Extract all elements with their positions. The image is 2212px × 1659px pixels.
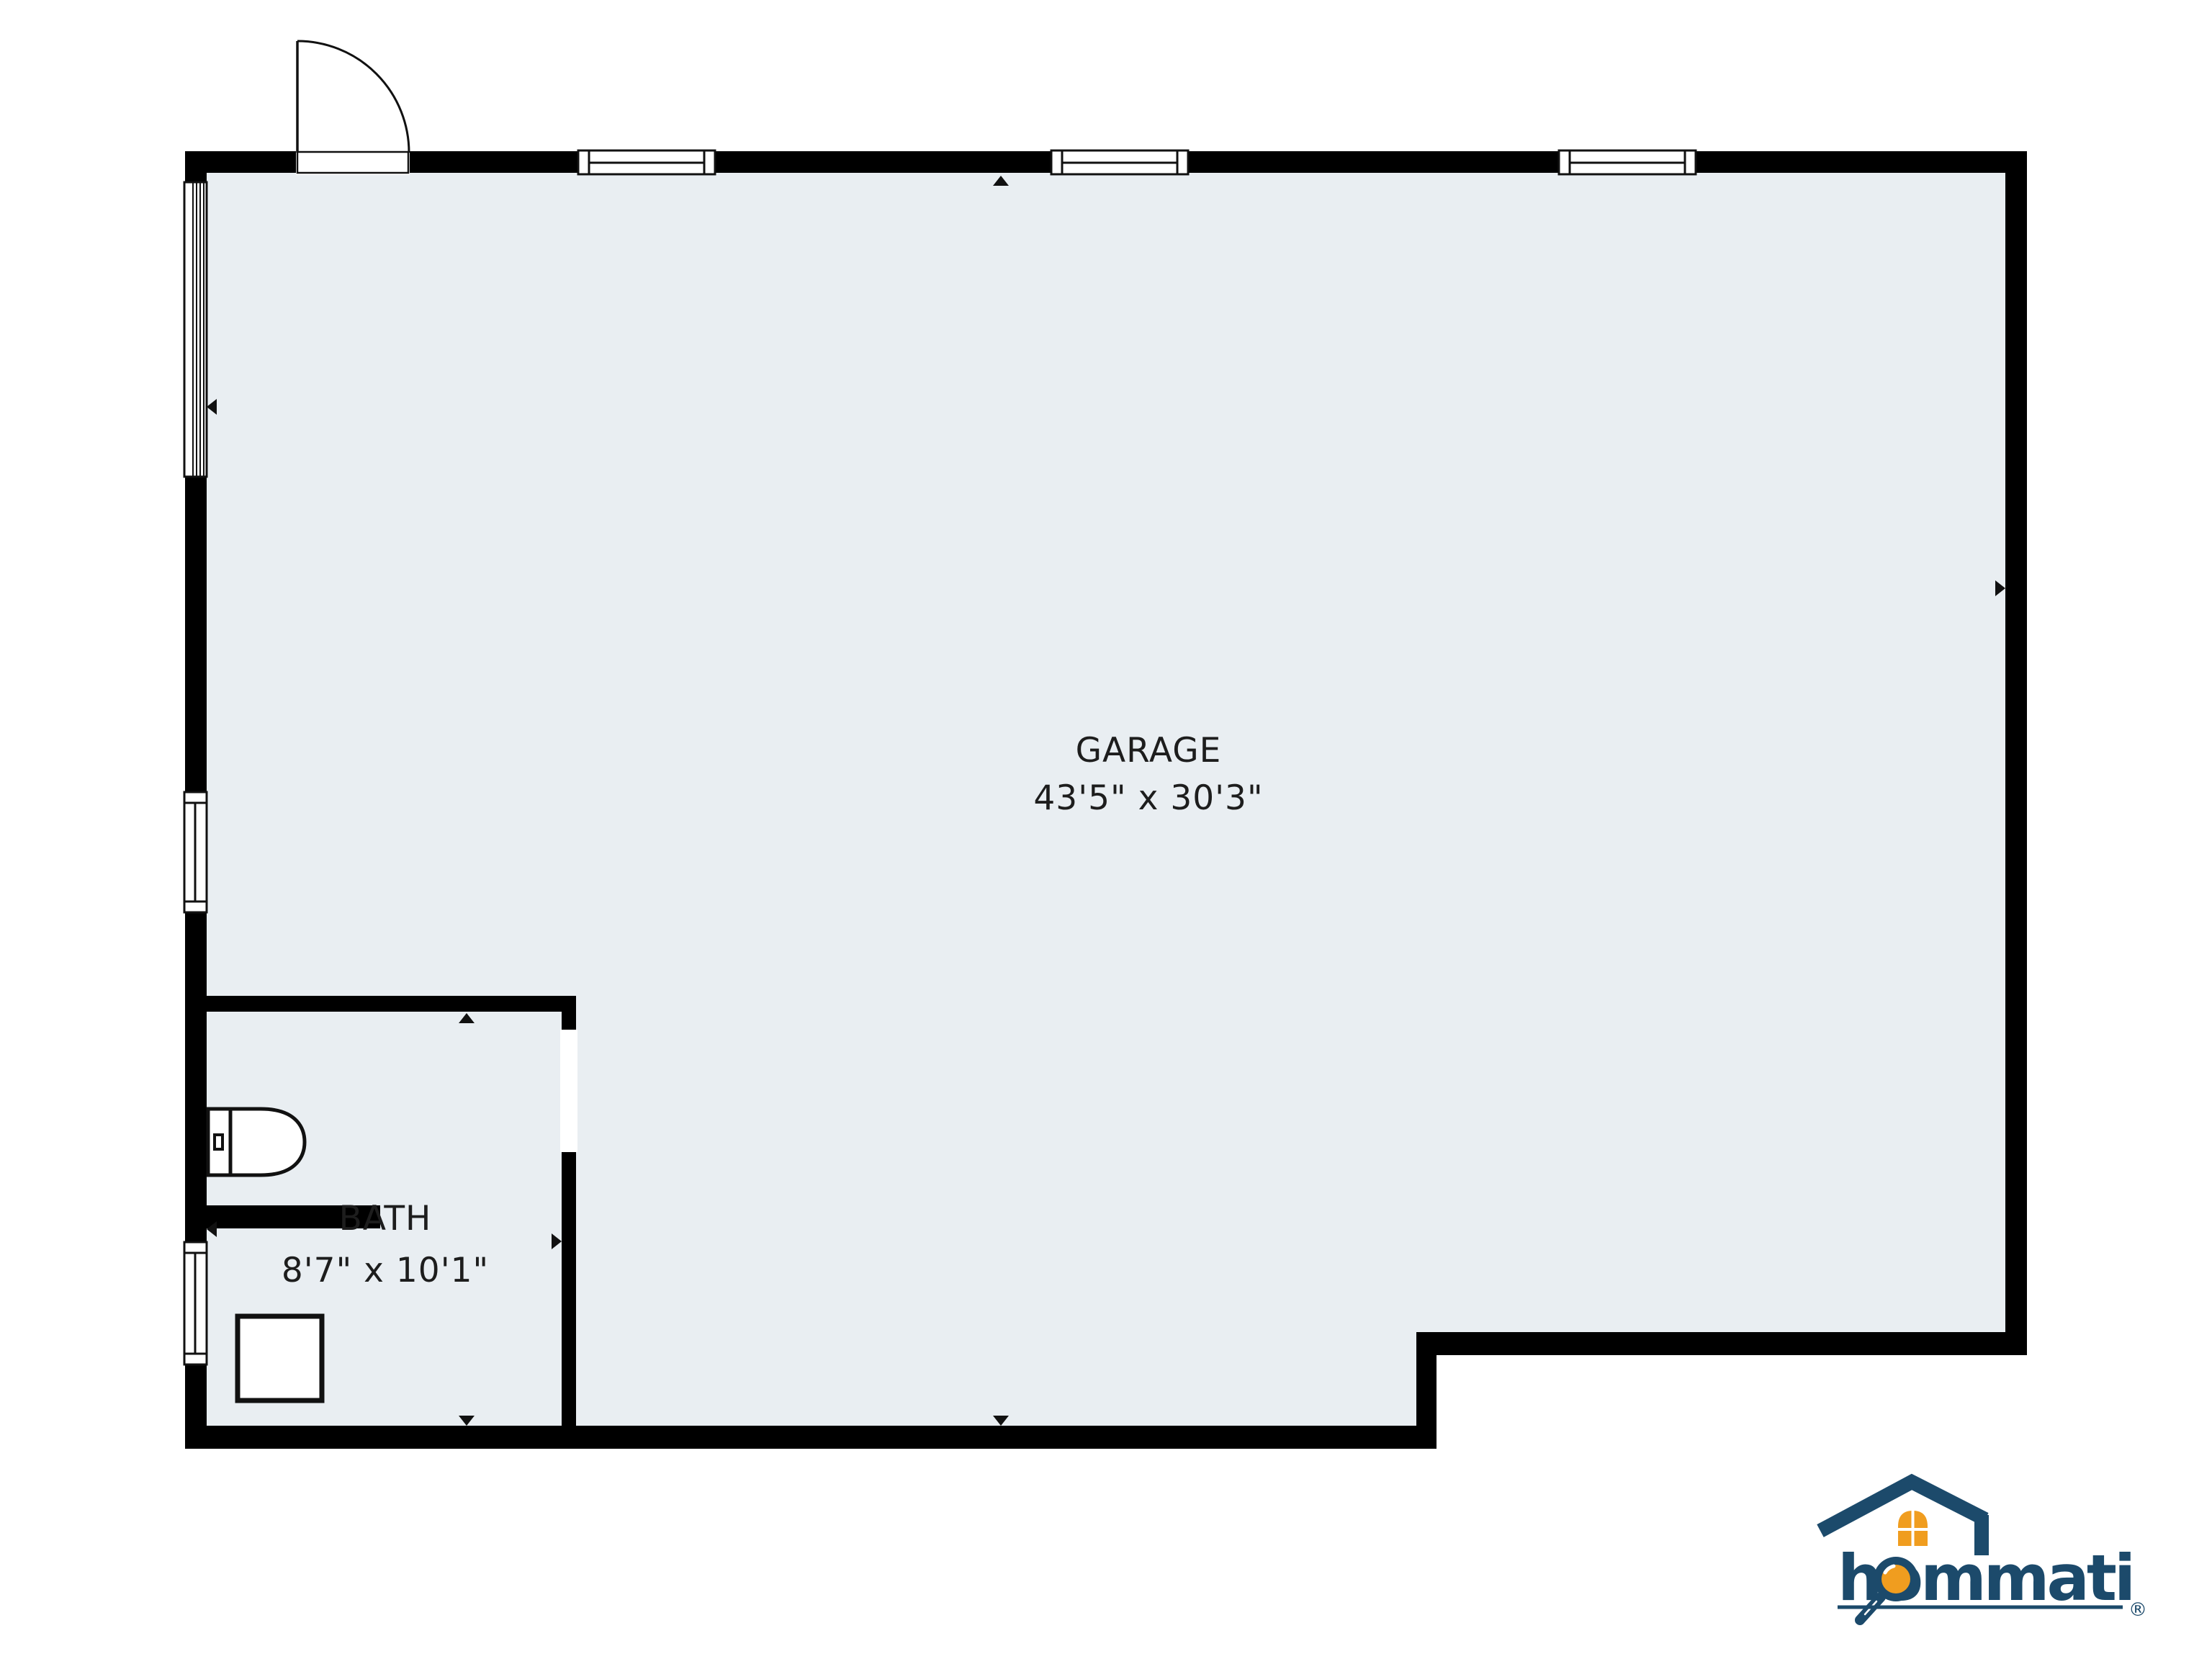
bath-right-wall-lower bbox=[562, 1151, 576, 1426]
toilet-icon bbox=[208, 1109, 305, 1175]
left-window-3 bbox=[184, 1242, 207, 1364]
bath-top-wall bbox=[207, 996, 576, 1012]
room-dimensions-garage: 43'5" x 30'3" bbox=[1033, 778, 1263, 818]
room-label-bath: BATH bbox=[339, 1199, 432, 1238]
toilet-flush bbox=[215, 1135, 222, 1149]
room-label-garage: GARAGE bbox=[1076, 731, 1222, 770]
top-window-2 bbox=[1051, 150, 1188, 174]
top-window-3 bbox=[1559, 150, 1696, 174]
floor-plan-page: GARAGE 43'5" x 30'3" BATH 8'7" x 10'1" h… bbox=[0, 0, 2212, 1659]
registered-mark: ® bbox=[2128, 1599, 2147, 1621]
bath-right-wall-upper bbox=[562, 1012, 576, 1031]
toilet-bowl bbox=[230, 1109, 305, 1175]
left-window-2 bbox=[184, 792, 207, 912]
bath-door-opening bbox=[560, 1030, 577, 1152]
door-sill bbox=[297, 152, 408, 173]
door-swing-arc bbox=[297, 41, 409, 153]
left-sliding-window bbox=[184, 182, 207, 477]
shower-base bbox=[238, 1316, 322, 1401]
floor-plan: GARAGE 43'5" x 30'3" BATH 8'7" x 10'1" h… bbox=[0, 0, 2212, 1659]
top-window-1 bbox=[578, 150, 715, 174]
hommati-logo: hommati ® bbox=[1820, 1482, 2147, 1621]
entry-door bbox=[296, 41, 410, 175]
room-dimensions-bath: 8'7" x 10'1" bbox=[282, 1251, 489, 1290]
